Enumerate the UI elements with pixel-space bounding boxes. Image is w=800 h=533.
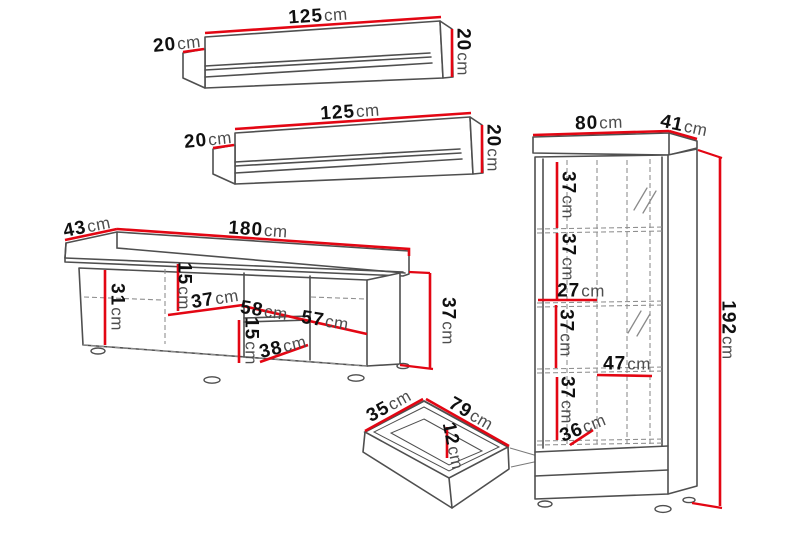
dim-label-cabinet-height: 192cm (719, 300, 738, 359)
furniture-dimension-diagram: 125cm 20cm 20cm 125cm 20cm 20cm 43cm 180… (0, 0, 800, 533)
dim-label-tv-left-height: 31cm (108, 283, 127, 331)
dim-line-cabinet-glass-shelf (597, 375, 652, 376)
dim-label-tv-height: 37cm (439, 297, 458, 345)
diagram-canvas (0, 0, 800, 533)
dim-line-tv-height-ticks (400, 272, 433, 369)
dim-label-cabinet-sec3: 37cm (557, 309, 576, 357)
dim-label-cabinet-left-shelf: 27cm (557, 282, 605, 301)
dim-label-shelf2-height: 20cm (484, 124, 503, 172)
dim-label-cabinet-sec2: 37cm (559, 233, 578, 281)
cabinet-foot (683, 497, 695, 502)
dim-label-shelf1-height: 20cm (454, 28, 473, 76)
cabinet-foot (538, 501, 552, 507)
dim-label-tv-width: 180cm (228, 218, 289, 241)
dim-label-tv-niche-bottom-height: 15cm (242, 317, 261, 365)
dim-label-cabinet-glass-shelf: 47cm (603, 355, 651, 374)
wall-shelf-2-drawing (213, 113, 483, 184)
dim-label-cabinet-sec1: 37cm (559, 171, 578, 219)
wall-shelf-1-drawing (183, 17, 453, 88)
dim-label-cabinet-width: 80cm (575, 113, 623, 134)
tv-stand-foot (91, 348, 105, 354)
tv-stand-foot (348, 375, 364, 381)
tv-stand-foot (204, 377, 220, 383)
dim-label-cabinet-sec4: 37cm (558, 376, 577, 424)
cabinet-foot (655, 506, 671, 513)
